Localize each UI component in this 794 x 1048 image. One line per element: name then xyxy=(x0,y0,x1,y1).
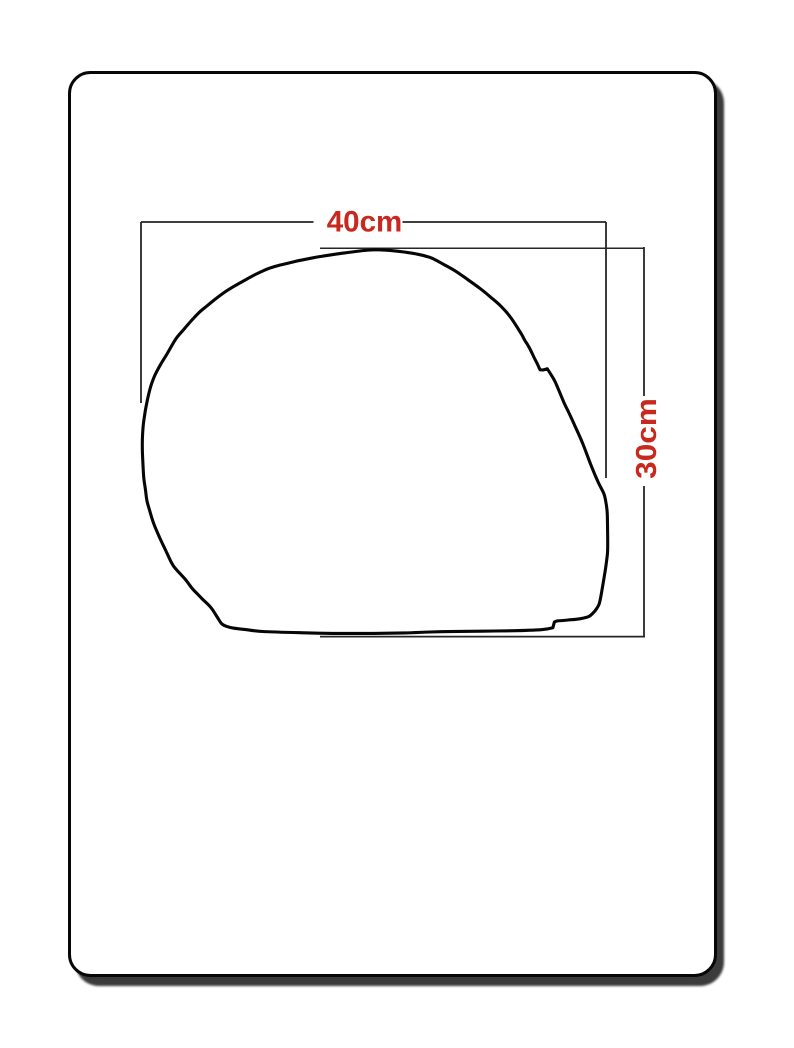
svg-text:30cm: 30cm xyxy=(631,398,662,479)
svg-text:40cm: 40cm xyxy=(327,206,402,239)
